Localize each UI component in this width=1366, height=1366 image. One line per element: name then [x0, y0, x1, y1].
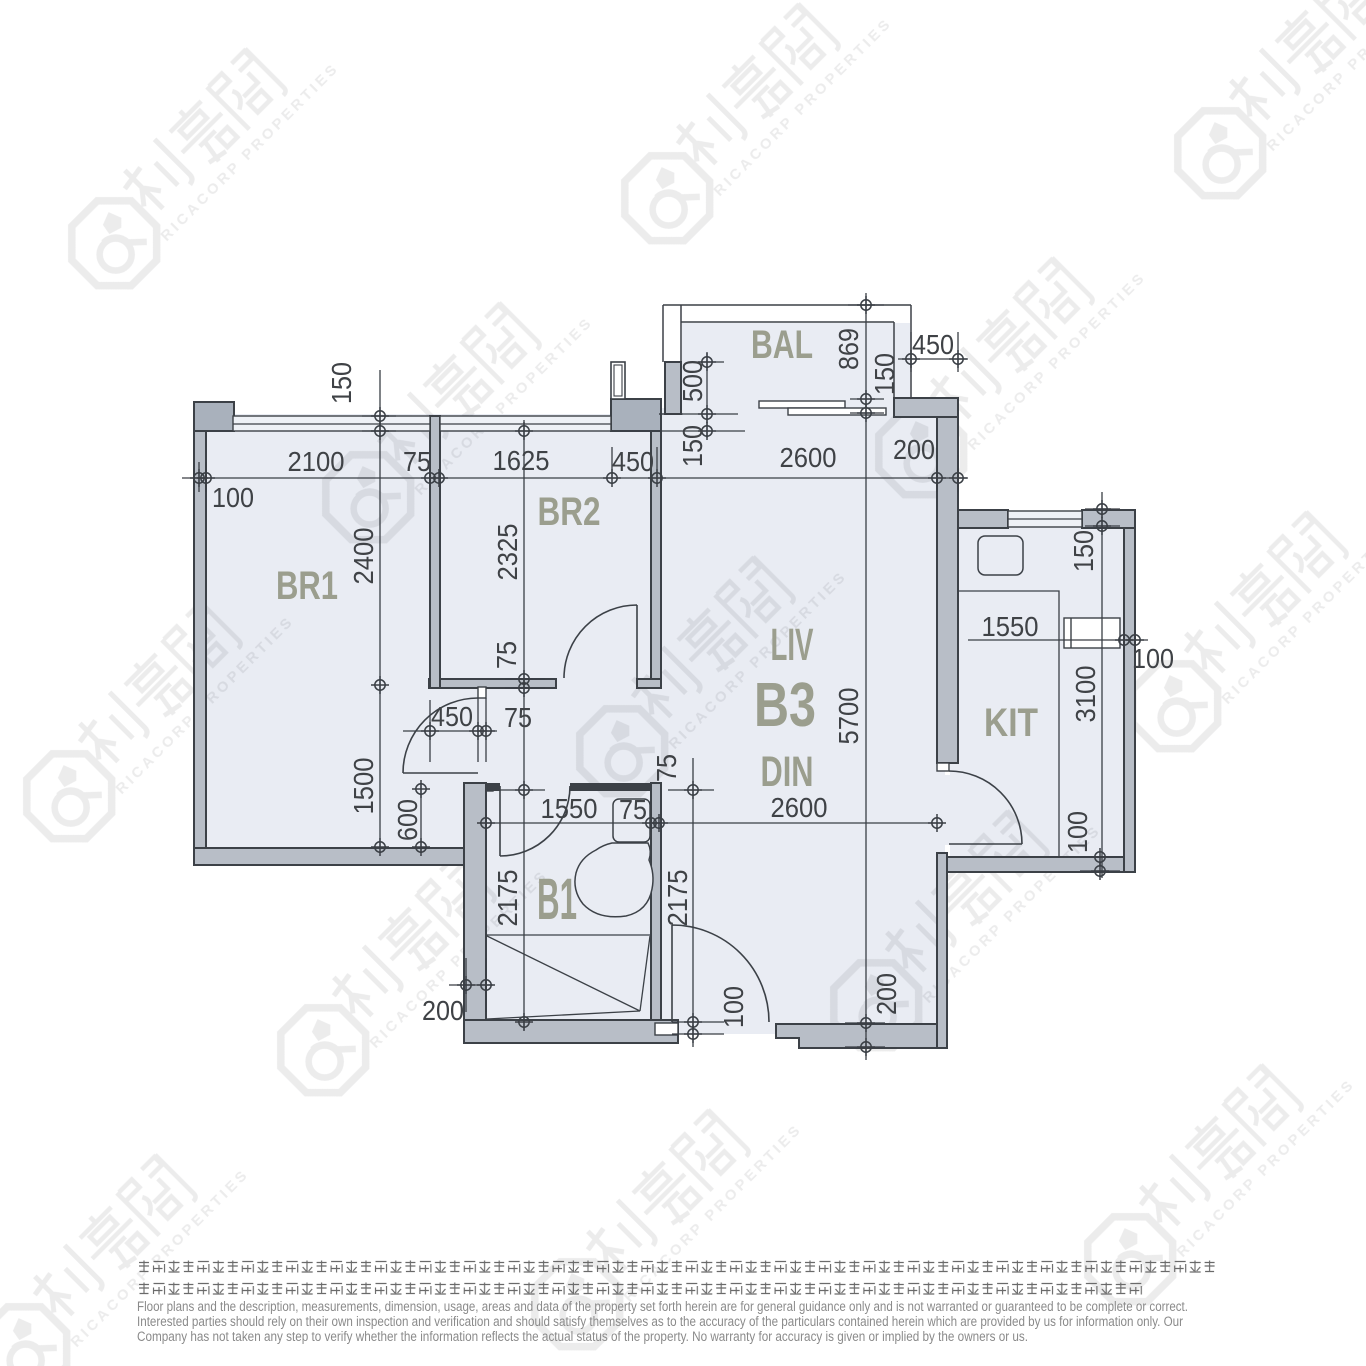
svg-text:1550: 1550 — [541, 793, 598, 824]
svg-text:LIV: LIV — [771, 619, 814, 670]
svg-text:75: 75 — [504, 702, 532, 733]
svg-text:BR2: BR2 — [538, 490, 601, 534]
svg-text:200: 200 — [422, 995, 464, 1026]
svg-text:450: 450 — [612, 446, 654, 477]
svg-text:1625: 1625 — [493, 445, 550, 476]
svg-text:869: 869 — [833, 328, 864, 370]
svg-text:450: 450 — [912, 329, 954, 360]
svg-text:500: 500 — [677, 360, 708, 402]
svg-text:Floor plans and the descriptio: Floor plans and the description, measure… — [137, 1299, 1188, 1314]
svg-text:2400: 2400 — [348, 528, 379, 585]
svg-text:100: 100 — [212, 482, 254, 513]
svg-text:2175: 2175 — [662, 870, 693, 927]
svg-text:150: 150 — [677, 425, 708, 467]
svg-text:2175: 2175 — [492, 870, 523, 927]
svg-text:150: 150 — [869, 353, 900, 395]
svg-text:DIN: DIN — [761, 748, 814, 796]
svg-text:2600: 2600 — [771, 792, 828, 823]
svg-text:Interested parties should rely: Interested parties should rely on their … — [137, 1314, 1183, 1329]
svg-text:5700: 5700 — [833, 688, 864, 745]
svg-text:200: 200 — [871, 973, 902, 1015]
svg-text:1500: 1500 — [348, 758, 379, 815]
svg-text:75: 75 — [403, 446, 431, 477]
svg-text:100: 100 — [1132, 643, 1174, 674]
svg-text:150: 150 — [326, 362, 357, 404]
svg-text:600: 600 — [392, 799, 423, 841]
svg-text:75: 75 — [619, 794, 647, 825]
svg-text:BR1: BR1 — [276, 564, 338, 608]
svg-text:75: 75 — [491, 641, 522, 669]
svg-text:100: 100 — [718, 986, 749, 1028]
svg-text:1550: 1550 — [982, 611, 1039, 642]
svg-text:150: 150 — [1068, 530, 1099, 572]
svg-text:B1: B1 — [537, 867, 577, 932]
svg-text:3100: 3100 — [1070, 666, 1101, 723]
svg-text:100: 100 — [1062, 811, 1093, 853]
svg-text:450: 450 — [431, 701, 473, 732]
svg-text:200: 200 — [893, 434, 935, 465]
svg-text:BAL: BAL — [751, 323, 813, 367]
svg-text:B3: B3 — [754, 671, 816, 740]
svg-text:2100: 2100 — [288, 446, 345, 477]
svg-text:Company has not taken any step: Company has not taken any step to verify… — [137, 1329, 1028, 1344]
svg-text:2325: 2325 — [492, 524, 523, 581]
svg-text:KIT: KIT — [984, 701, 1038, 745]
svg-text:2600: 2600 — [780, 442, 837, 473]
svg-text:75: 75 — [651, 754, 682, 782]
